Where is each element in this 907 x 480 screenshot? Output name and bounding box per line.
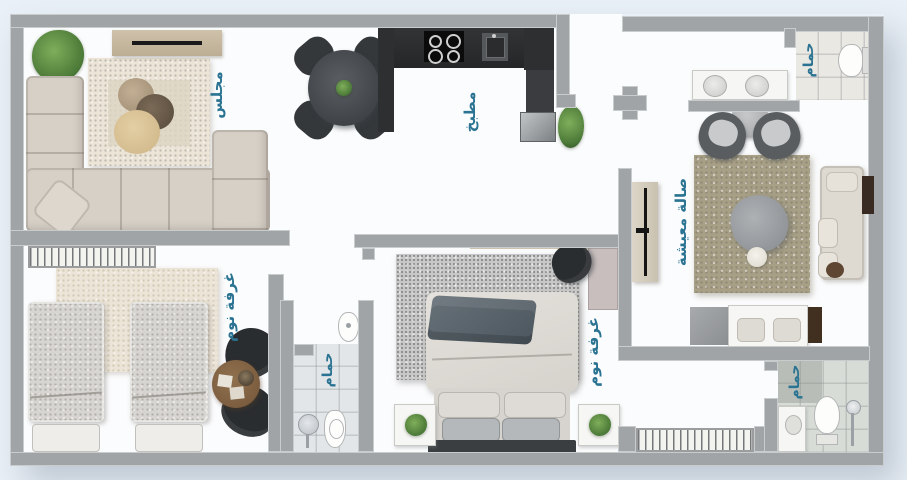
wall-outer-bottom xyxy=(10,452,884,466)
shower-bottom xyxy=(846,400,862,448)
faucet-icon xyxy=(492,34,496,38)
toilet-bowl xyxy=(814,396,840,434)
bench-cushion xyxy=(773,318,801,342)
pillow xyxy=(135,424,203,452)
nightstand-plant xyxy=(589,414,611,436)
room-label-living-hall: صالة معيشة xyxy=(672,178,690,266)
armchair-cushion xyxy=(706,117,741,150)
room-label-bedroom-master: غرفة نوم xyxy=(584,317,602,387)
floor-plan: مجلس مطبخ حمام صالة معيشة غرفة نوم حمام … xyxy=(0,0,907,480)
tv-mount-icon xyxy=(636,228,649,233)
bench-cushion xyxy=(737,318,765,342)
wall-bath-br-left xyxy=(764,398,778,452)
wall-majlis-south xyxy=(10,230,290,246)
tv-icon xyxy=(132,41,202,45)
throw-blanket xyxy=(427,295,537,344)
sink-icon xyxy=(703,75,727,97)
entry-door-opening xyxy=(570,14,622,30)
nightstand xyxy=(394,404,436,446)
wardrobe xyxy=(588,248,618,310)
toilet-bottom xyxy=(812,396,842,448)
vanity-bottom xyxy=(778,406,806,452)
window-radiator xyxy=(28,246,156,268)
room-label-bathroom-bottom: حمام xyxy=(787,365,803,400)
toilet-seat xyxy=(329,419,344,439)
kitchen-sink xyxy=(482,33,508,61)
room-label-kitchen: مطبخ xyxy=(461,92,479,133)
double-vanity xyxy=(692,70,788,100)
wall-master-door-stub xyxy=(362,248,375,260)
wall-living-west xyxy=(618,168,632,360)
sectional-sofa-right xyxy=(212,130,268,234)
wall-vanity-south xyxy=(688,100,800,112)
sofa-cushion xyxy=(818,218,838,248)
pillow-gray xyxy=(442,418,500,442)
shower-head-icon xyxy=(298,414,319,435)
window-post-left xyxy=(618,426,636,452)
wall-outer-right xyxy=(868,16,884,466)
twin-duvet xyxy=(130,302,208,422)
pillow xyxy=(504,392,566,418)
corridor-window xyxy=(636,428,754,452)
toilet-tank xyxy=(816,434,838,445)
dark-cabinet xyxy=(808,307,822,343)
kitchen-counter-right-top xyxy=(524,24,554,70)
wall-living-south xyxy=(618,346,870,361)
wall-outer-top-left xyxy=(10,14,558,28)
coffee-table-sand xyxy=(114,110,160,154)
twin-duvet xyxy=(28,302,104,422)
twin-bed xyxy=(28,302,104,454)
twin-bed xyxy=(130,302,208,454)
table-bowl xyxy=(238,370,254,386)
cooktop xyxy=(424,31,464,62)
wall-bath-mid-east xyxy=(358,300,374,452)
wall-outer-top-right xyxy=(622,16,870,32)
pillow xyxy=(438,392,500,418)
wall-bath-mid-partition xyxy=(294,344,314,356)
drain-icon xyxy=(346,323,351,328)
kitchen-counter-left xyxy=(378,24,394,132)
burner-icon xyxy=(428,49,443,64)
nightstand-plant xyxy=(405,414,427,436)
room-label-bedroom-twin: غرفة نوم xyxy=(220,272,238,342)
mini-table xyxy=(747,247,767,267)
sofa-pillow xyxy=(826,172,858,192)
sink-icon xyxy=(785,415,802,435)
burner-icon xyxy=(446,34,461,49)
wall-master-north xyxy=(354,234,632,248)
round-wood-table xyxy=(212,360,260,408)
room-label-bathroom-top: حمام xyxy=(801,43,817,78)
living-sofa xyxy=(820,166,864,280)
shower-middle xyxy=(296,412,320,450)
sink-basin xyxy=(486,37,505,58)
burner-icon xyxy=(447,50,460,63)
bench-seat xyxy=(728,305,808,347)
room-label-majlis: مجلس xyxy=(208,71,226,118)
nightstand xyxy=(578,404,620,446)
majlis-rug xyxy=(88,58,210,166)
kitchen-counter-right xyxy=(526,70,554,114)
room-label-bathroom-middle: حمام xyxy=(320,353,336,388)
kitchen-appliance xyxy=(520,112,556,142)
sink-icon xyxy=(745,75,769,97)
square-side-table xyxy=(690,307,728,345)
armchair-cushion xyxy=(758,117,793,150)
master-bed xyxy=(426,292,578,454)
sink-pedestal xyxy=(338,312,359,342)
pillow xyxy=(32,424,100,452)
wall-bath-tr-stub xyxy=(784,28,796,48)
entry-column-h xyxy=(613,95,647,111)
throw-item xyxy=(826,262,844,278)
shower-pole xyxy=(306,434,309,448)
majlis-tv-console xyxy=(112,30,222,56)
wall-bath-mid-west xyxy=(280,300,294,452)
wall-entry-stub xyxy=(556,14,570,106)
toilet-top xyxy=(838,44,872,78)
burner-icon xyxy=(429,35,442,48)
pillow-gray xyxy=(502,418,560,442)
table-book xyxy=(217,374,233,388)
living-tv-console xyxy=(632,182,658,282)
shower-pole xyxy=(851,413,854,446)
wall-bath-br-left-top xyxy=(764,361,778,371)
toilet-bowl xyxy=(838,44,863,77)
wall-entry-stub-foot xyxy=(556,94,576,108)
table-book xyxy=(229,386,244,399)
toilet-middle xyxy=(324,410,346,448)
wall-tv-icon xyxy=(862,176,874,214)
